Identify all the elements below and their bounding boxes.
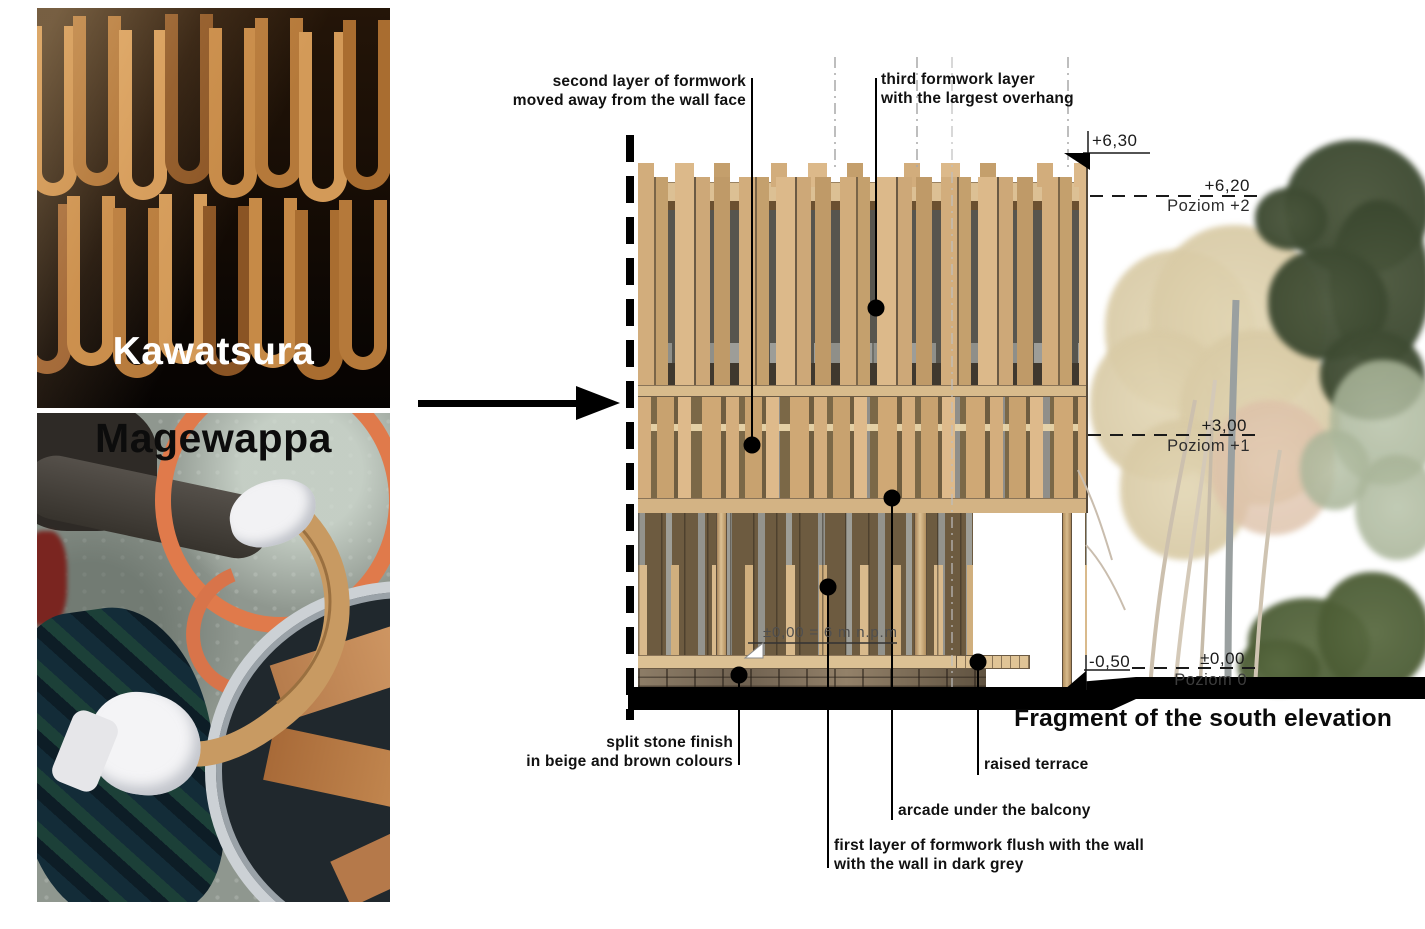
- arrow-right: [418, 386, 618, 420]
- callout-line: third formwork layer: [881, 70, 1074, 89]
- datum-note: ±0,00 = 6 m n.p.m: [763, 624, 898, 641]
- timber-post: [914, 513, 927, 655]
- formwork-slats: [638, 177, 1088, 385]
- arrow-head: [576, 386, 620, 420]
- arcade-column: [1062, 513, 1072, 687]
- callout-arcade: arcade under the balcony: [898, 801, 1091, 820]
- photo-magewappa-craft: Magewappa: [37, 413, 390, 902]
- plinth-rail: [638, 655, 958, 669]
- level-below-value: -0,50: [1089, 652, 1130, 672]
- photo-caption-kawatsura: Kawatsura: [37, 330, 390, 374]
- level2-name: Poziom +2: [1167, 197, 1250, 216]
- balcony-floor-band: [638, 498, 1088, 513]
- callout-third-layer: third formwork layer with the largest ov…: [881, 70, 1074, 108]
- first-floor-facade: [638, 397, 1088, 513]
- callout-line: with the wall in dark grey: [834, 855, 1144, 874]
- callout-line: with the largest overhang: [881, 89, 1074, 108]
- photo-kawatsura-wood-strips: Kawatsura: [37, 8, 390, 408]
- bush-foliage: [1238, 640, 1320, 695]
- tree-foliage: [1300, 430, 1370, 510]
- callout-line: in beige and brown colours: [526, 752, 733, 771]
- bent-wood-strip: [37, 413, 390, 902]
- callout-raised-terrace: raised terrace: [984, 755, 1088, 774]
- level-roof-value: +6,30: [1092, 131, 1138, 151]
- level1-name: Poziom +1: [1167, 437, 1250, 456]
- drawing-title: Fragment of the south elevation: [1014, 705, 1392, 733]
- raised-terrace-slab: [956, 655, 1030, 669]
- callout-split-stone: split stone finish in beige and brown co…: [526, 733, 733, 771]
- callout-first-layer: first layer of formwork flush with the w…: [834, 836, 1144, 874]
- timber-post: [716, 513, 727, 655]
- balcony-rail: [638, 385, 1088, 397]
- presentation-board: Kawatsura Magewappa: [0, 0, 1425, 929]
- callout-line: second layer of formwork: [513, 72, 746, 91]
- callout-line: split stone finish: [526, 733, 733, 752]
- tree-foliage: [1255, 188, 1327, 250]
- arrow-shaft: [418, 400, 580, 407]
- photo-caption-magewappa: Magewappa: [37, 415, 390, 462]
- building-right-edge: [1086, 163, 1088, 513]
- split-stone-base: [638, 669, 986, 687]
- formwork-slats: [638, 397, 1088, 513]
- level2-value: +6,20: [1204, 176, 1250, 196]
- callout-line: moved away from the wall face: [513, 91, 746, 110]
- level1-value: +3,00: [1201, 416, 1247, 436]
- callout-second-layer: second layer of formwork moved away from…: [513, 72, 746, 110]
- level0-value: ±0,00: [1200, 649, 1245, 669]
- bush-foliage: [1318, 572, 1425, 692]
- second-floor-facade: [638, 163, 1088, 397]
- level0-name: Poziom 0: [1174, 671, 1247, 690]
- callout-line: first layer of formwork flush with the w…: [834, 836, 1144, 855]
